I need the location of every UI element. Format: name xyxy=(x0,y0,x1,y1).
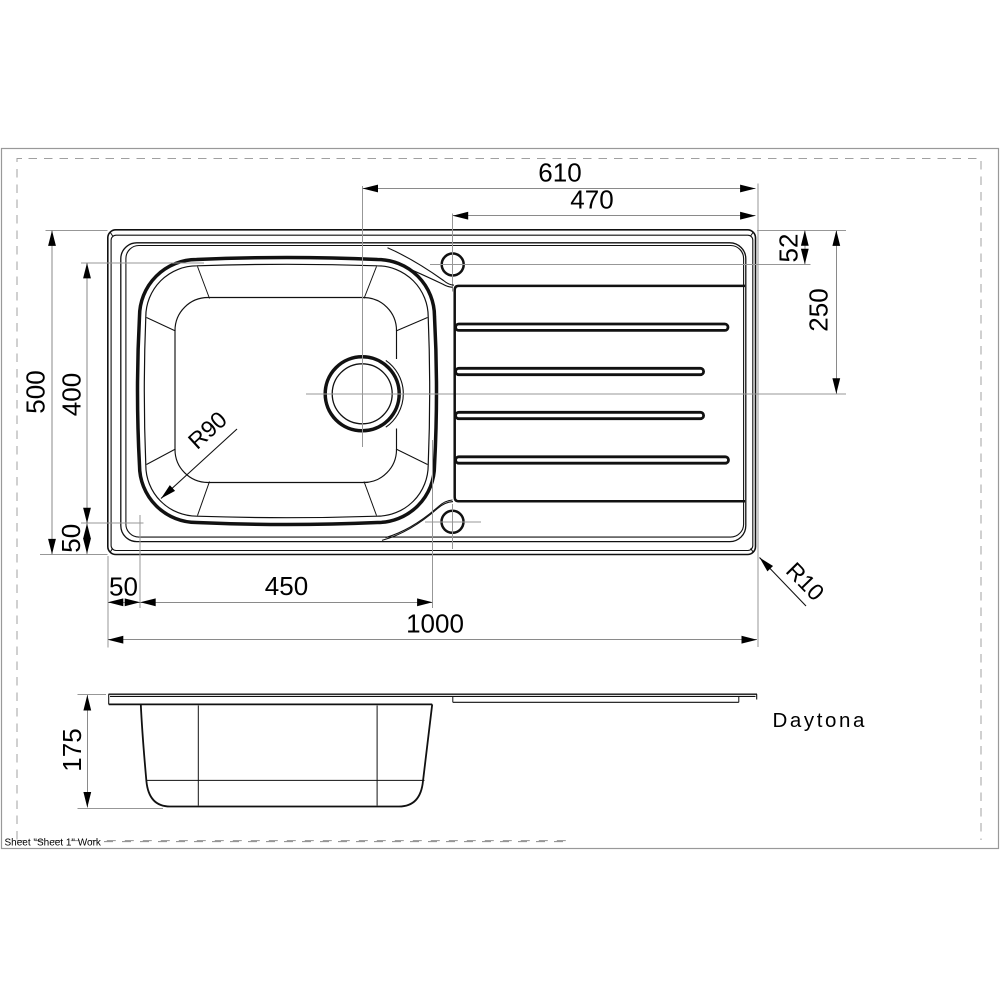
svg-text:610: 610 xyxy=(538,158,581,188)
svg-text:52: 52 xyxy=(774,234,804,263)
svg-text:450: 450 xyxy=(265,571,308,601)
svg-text:470: 470 xyxy=(570,185,613,215)
svg-text:500: 500 xyxy=(21,370,51,413)
svg-text:Sheet "Sheet 1" Work: Sheet "Sheet 1" Work xyxy=(5,838,102,849)
svg-text:1000: 1000 xyxy=(406,609,464,639)
svg-text:250: 250 xyxy=(804,288,834,331)
svg-text:175: 175 xyxy=(57,728,87,771)
svg-text:50: 50 xyxy=(56,524,86,553)
svg-text:50: 50 xyxy=(109,571,138,601)
svg-text:400: 400 xyxy=(57,373,87,416)
svg-text:Daytona: Daytona xyxy=(773,709,868,732)
